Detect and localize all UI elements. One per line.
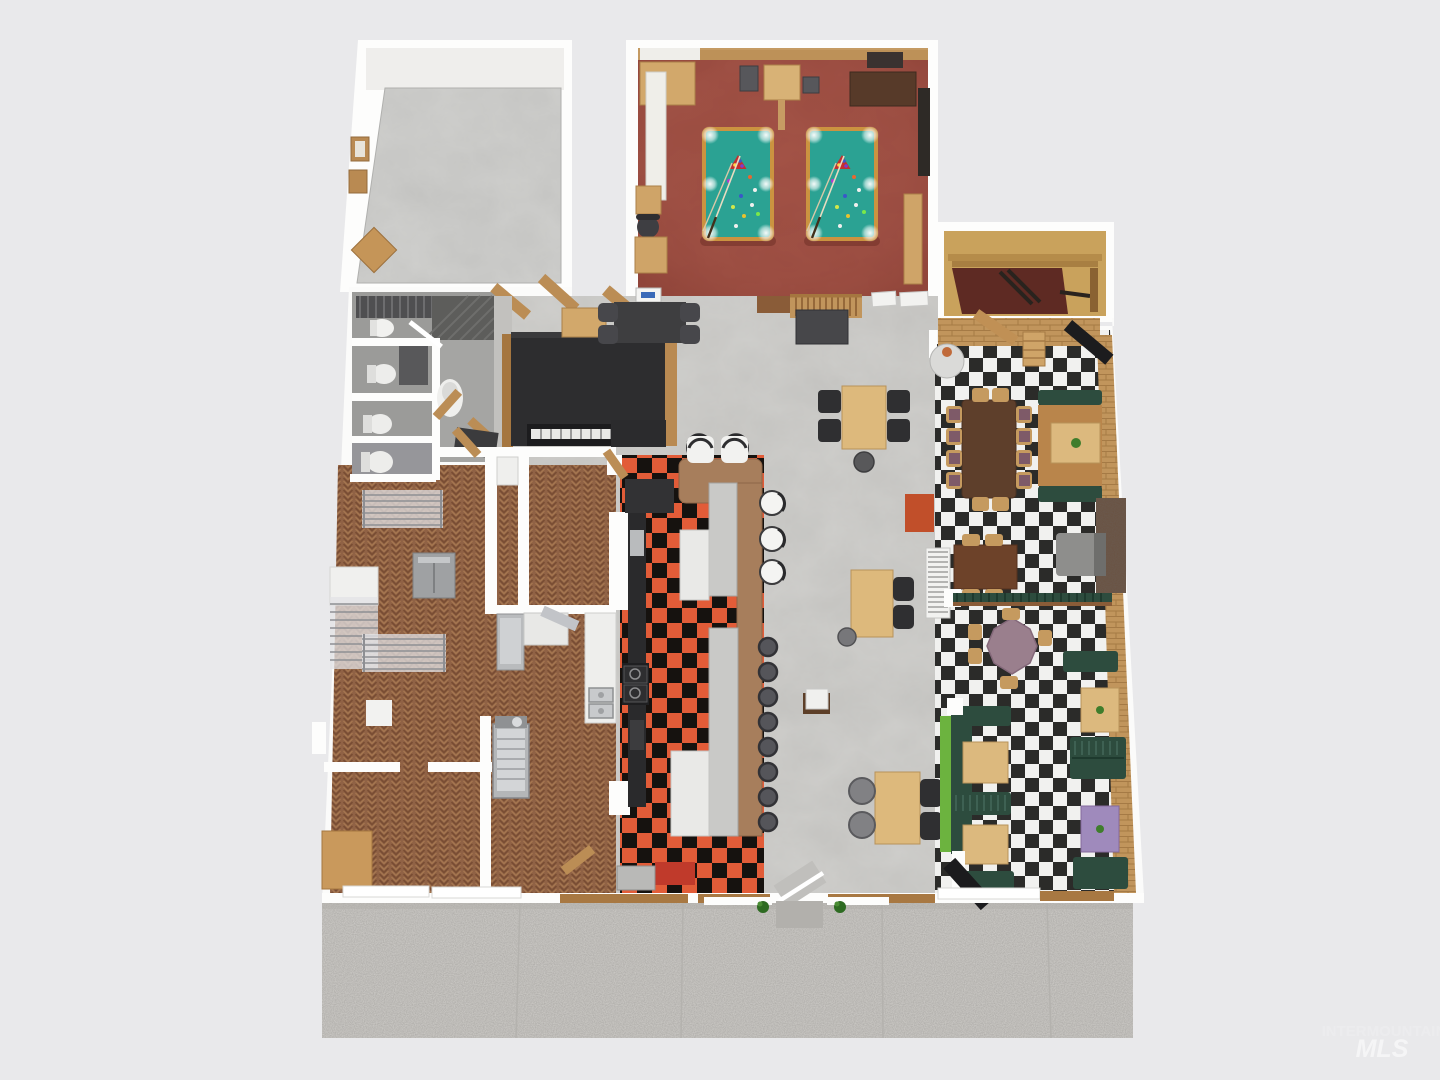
svg-text:MLS: MLS	[1356, 1035, 1409, 1063]
